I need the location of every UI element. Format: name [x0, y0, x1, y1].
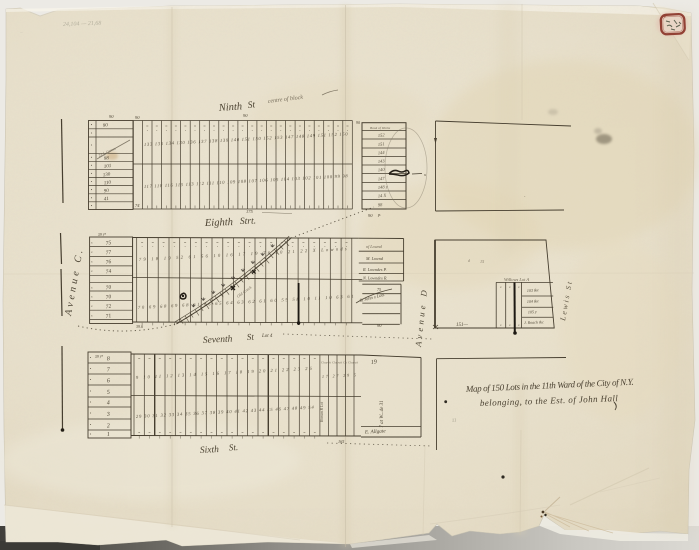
svg-text:x: x — [90, 260, 93, 264]
svg-text:11: 11 — [452, 418, 457, 424]
svg-text:3: 3 — [106, 412, 111, 418]
svg-text:74: 74 — [135, 203, 140, 208]
svg-text:Ninth: Ninth — [217, 101, 242, 114]
svg-text:2: 2 — [107, 423, 111, 429]
svg-text:15: 15 — [480, 259, 484, 264]
svg-text:152: 152 — [378, 132, 386, 138]
svg-text:of Lownd: of Lownd — [366, 244, 383, 249]
svg-text:Church Church Ch Church: Church Church Ch Church — [321, 361, 358, 365]
svg-text:M. Lownd: M. Lownd — [365, 256, 384, 261]
svg-text:1: 1 — [107, 432, 111, 438]
svg-text:x: x — [517, 285, 520, 289]
svg-text:St: St — [247, 100, 256, 111]
svg-text:90: 90 — [135, 115, 140, 120]
svg-text:140: 140 — [378, 167, 386, 173]
svg-text:x: x — [508, 285, 511, 289]
svg-text:101: 101 — [104, 164, 112, 170]
svg-text:Strt.: Strt. — [240, 216, 256, 227]
svg-text:90: 90 — [109, 114, 114, 119]
svg-text:x: x — [90, 314, 93, 318]
svg-text:Eighth: Eighth — [204, 217, 233, 229]
svg-text:x: x — [90, 250, 93, 254]
svg-text:104 &c: 104 &c — [527, 298, 539, 304]
svg-text:Book of Works: Book of Works — [370, 126, 391, 130]
svg-text:90: 90 — [356, 120, 360, 125]
svg-text:~: ~ — [20, 31, 23, 36]
svg-text:24,104 — 21,68: 24,104 — 21,68 — [63, 20, 102, 28]
svg-text:p.: p. — [377, 212, 381, 217]
svg-text:Lot 4: Lot 4 — [261, 334, 273, 339]
svg-text:St: St — [247, 332, 255, 342]
svg-text:90: 90 — [377, 323, 382, 328]
svg-text:90: 90 — [243, 113, 248, 118]
svg-text:151—: 151— — [456, 323, 469, 328]
svg-text:151: 151 — [378, 141, 385, 147]
svg-text:E. Allgate: E. Allgate — [364, 428, 387, 435]
svg-text:x: x — [90, 304, 93, 308]
svg-text:148 y: 148 y — [378, 184, 388, 190]
svg-text:7 at W...de 31: 7 at W...de 31 — [380, 400, 385, 427]
svg-text:J. Roach &c: J. Roach &c — [524, 319, 544, 325]
svg-text:d: d — [468, 259, 470, 263]
svg-text:19: 19 — [371, 359, 378, 366]
svg-text:N. Lowndes R.: N. Lowndes R. — [362, 276, 387, 281]
svg-text:Roman R Lot: Roman R Lot — [320, 401, 324, 423]
svg-text:75: 75 — [377, 287, 381, 292]
svg-text:R. Lowndes P.: R. Lowndes P. — [362, 267, 387, 272]
svg-text:105 y: 105 y — [528, 309, 537, 315]
svg-text:x: x — [499, 323, 502, 327]
svg-text:x: x — [499, 285, 502, 289]
svg-text:x: x — [423, 172, 426, 177]
svg-text:x: x — [90, 241, 93, 245]
svg-text:Sixth: Sixth — [200, 445, 220, 456]
svg-text:8: 8 — [107, 356, 111, 362]
svg-text:110: 110 — [104, 180, 112, 186]
svg-text:165: 165 — [338, 439, 344, 444]
svg-text:6: 6 — [107, 378, 111, 384]
svg-text:5: 5 — [107, 390, 111, 396]
svg-text:103 &c: 103 &c — [527, 287, 539, 293]
svg-text:x: x — [517, 323, 520, 327]
svg-text:x: x — [90, 286, 93, 290]
svg-text:90: 90 — [368, 213, 373, 218]
svg-text:x: x — [90, 269, 93, 273]
svg-text:147: 147 — [378, 176, 386, 182]
svg-text:x: x — [90, 295, 93, 299]
svg-text:143: 143 — [378, 158, 386, 164]
svg-text:41: 41 — [104, 197, 110, 203]
svg-text:St.: St. — [229, 442, 239, 452]
svg-text:175: 175 — [246, 209, 254, 214]
svg-text:Seventh: Seventh — [203, 334, 233, 346]
svg-text:14 X: 14 X — [378, 193, 387, 199]
svg-text:39.6: 39.6 — [136, 324, 143, 329]
svg-text:x: x — [508, 323, 511, 327]
svg-text:Willows Lot A: Willows Lot A — [504, 277, 529, 282]
svg-text:144: 144 — [378, 150, 386, 156]
